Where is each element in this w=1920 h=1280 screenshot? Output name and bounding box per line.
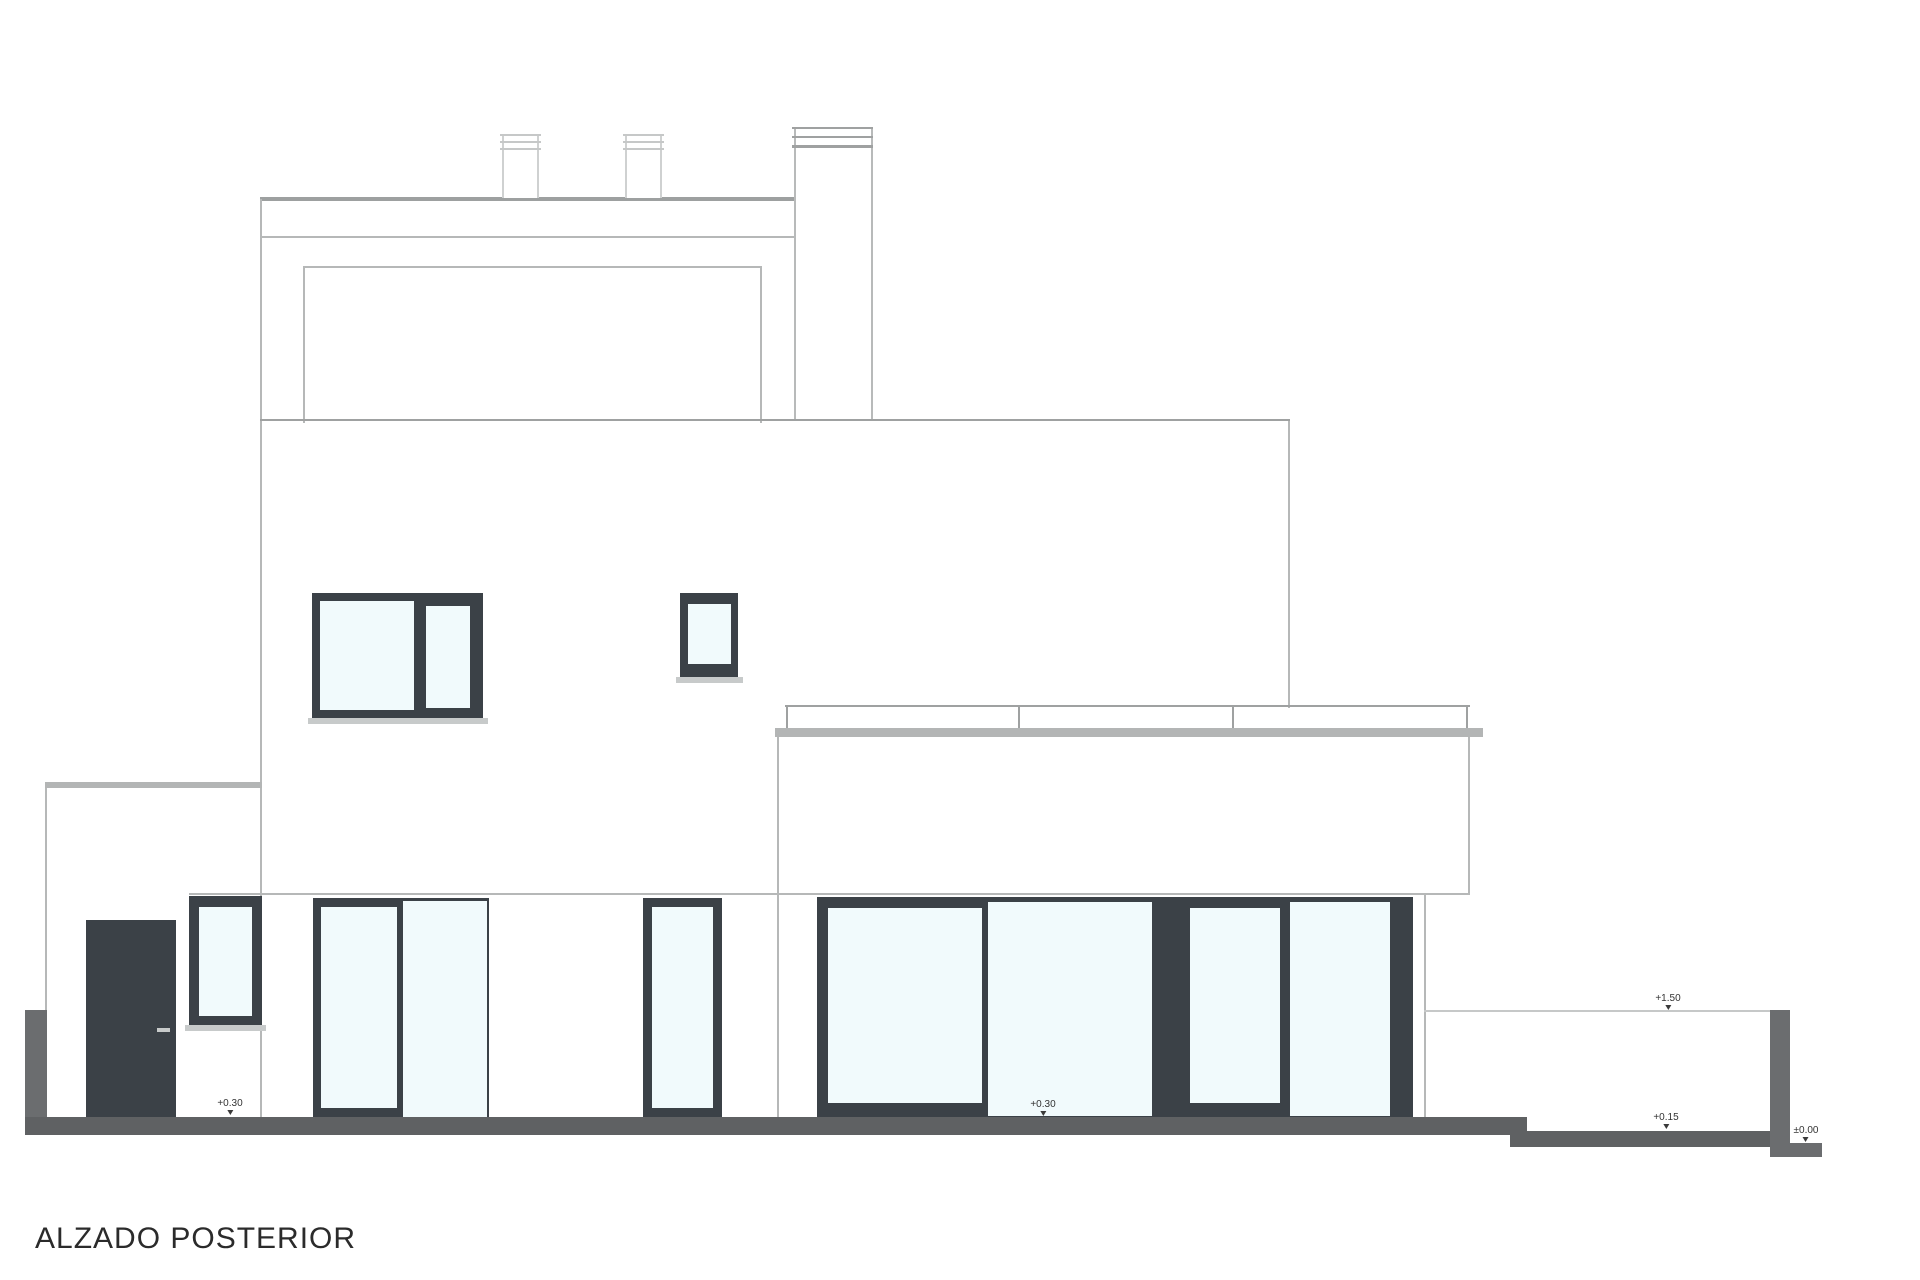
main-roofline — [260, 419, 1290, 421]
terrace-railing-post — [1232, 707, 1234, 728]
terrace-parapet-cap — [775, 728, 1483, 737]
chimney-small-left-cap-line — [500, 141, 541, 143]
chimney-large-cap-line — [792, 136, 873, 138]
level-tick-icon — [227, 1110, 233, 1115]
slider-right-glazing-fixed — [1290, 902, 1390, 1116]
chimney-large-cap-line — [792, 127, 873, 129]
window-ground-left-glazing-sash — [321, 907, 397, 1108]
chimney-small-left-cap-line — [500, 134, 541, 136]
chimney-small-right-cap-line — [623, 148, 664, 150]
level-tick-icon — [1040, 1111, 1046, 1116]
ground-line-main — [25, 1117, 1527, 1135]
chimney-small-right-cap-line — [623, 134, 664, 136]
terrace-railing-post — [1466, 707, 1468, 728]
window-upper-left-glazing-fixed — [320, 601, 414, 710]
chimney-large — [794, 127, 873, 420]
level-tick-icon — [1665, 1005, 1671, 1010]
boundary-wall-left-base — [25, 1010, 47, 1117]
window-entry-sill — [185, 1025, 266, 1031]
terrace-railing-post — [1018, 707, 1020, 728]
slider-left-glazing-sash — [828, 908, 982, 1103]
level-tick-icon — [1803, 1137, 1809, 1142]
elevation-sheet: +0.30 +0.30 +1.50 +0.15 ±0.00 ALZADO POS… — [0, 0, 1920, 1280]
main-right-wall-line — [1288, 421, 1290, 708]
chimney-small-right — [625, 134, 662, 198]
slider-right-glazing-sash — [1190, 908, 1280, 1103]
door-handle — [157, 1028, 170, 1032]
penthouse-parapet-bottom-line — [260, 236, 794, 238]
boundary-wall-left-cap — [45, 782, 262, 788]
window-upper-left-glazing-sash — [426, 606, 470, 708]
level-marker-site-datum: ±0.00 — [1794, 1125, 1819, 1142]
level-label: +0.30 — [1030, 1099, 1055, 1110]
level-label: ±0.00 — [1794, 1125, 1819, 1136]
window-upper-small-sill — [676, 677, 743, 683]
terrace-volume-right-edge — [1468, 737, 1470, 894]
terrace-railing-top-rail — [785, 705, 1470, 707]
chimney-large-cap-line — [792, 145, 873, 148]
chimney-small-left-cap-line — [500, 148, 541, 150]
ground-floor-lintel-line — [189, 893, 1470, 895]
chimney-small-left — [502, 134, 539, 198]
level-tick-icon — [1663, 1124, 1669, 1129]
level-label: +0.30 — [217, 1098, 242, 1109]
terrace-volume-left-edge — [777, 737, 779, 1117]
terrace-railing-post — [786, 707, 788, 728]
level-label: +1.50 — [1655, 993, 1680, 1004]
window-entry-glazing — [199, 907, 252, 1016]
window-upper-small-glazing — [688, 604, 731, 664]
penthouse-recessed-wall — [303, 266, 762, 423]
window-ground-left-glazing-fixed — [403, 901, 487, 1117]
window-ground-narrow-glazing — [652, 907, 713, 1108]
drawing-title: ALZADO POSTERIOR — [35, 1222, 356, 1256]
retaining-wall-right-footing — [1788, 1143, 1822, 1157]
level-marker-right-sidewalk: +0.15 — [1653, 1112, 1678, 1129]
chimney-small-right-cap-line — [623, 141, 664, 143]
level-marker-ground-floor-left: +0.30 — [217, 1098, 242, 1115]
ground-line-lower — [1510, 1131, 1772, 1147]
window-upper-left-sill — [308, 718, 488, 724]
slider-left-glazing-fixed — [988, 902, 1152, 1116]
site-wall-top-line-right — [1424, 1010, 1772, 1012]
entry-door — [86, 920, 176, 1117]
level-marker-right-wall-top: +1.50 — [1655, 993, 1680, 1010]
retaining-wall-right — [1770, 1010, 1790, 1157]
level-label: +0.15 — [1653, 1112, 1678, 1123]
level-marker-ground-floor-center: +0.30 — [1030, 1099, 1055, 1116]
building-right-corner-line — [1424, 894, 1426, 1117]
